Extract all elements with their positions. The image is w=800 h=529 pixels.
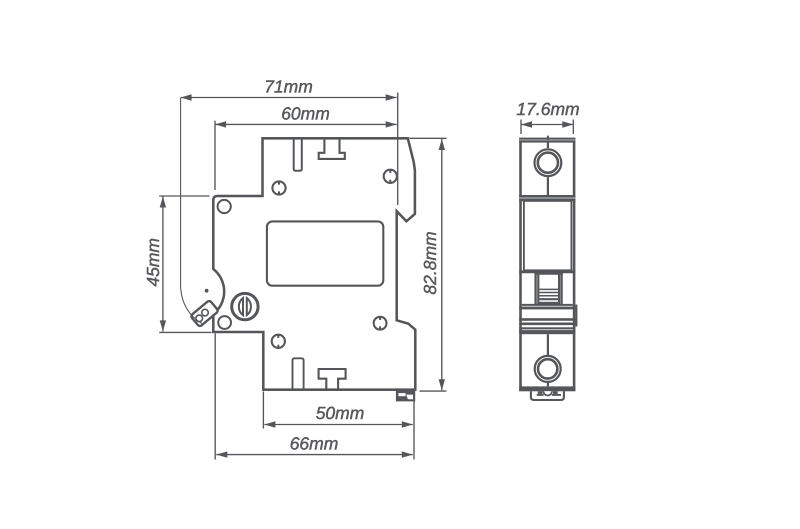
- svg-text:50mm: 50mm: [316, 403, 365, 423]
- svg-text:66mm: 66mm: [290, 434, 339, 454]
- svg-text:71mm: 71mm: [264, 77, 313, 97]
- svg-text:45mm: 45mm: [143, 238, 163, 287]
- svg-text:60mm: 60mm: [281, 103, 330, 123]
- svg-text:82.8mm: 82.8mm: [420, 231, 440, 294]
- svg-text:17.6mm: 17.6mm: [516, 99, 579, 119]
